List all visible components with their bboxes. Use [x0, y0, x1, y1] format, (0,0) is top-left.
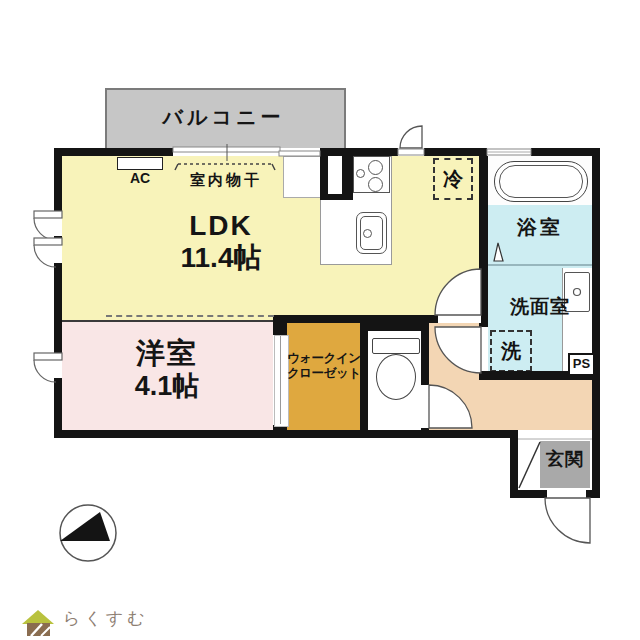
indoor-drying-label: 室内物干	[178, 172, 274, 189]
wall-mid-horizontal	[273, 315, 438, 323]
wall-toilet-left	[360, 323, 368, 430]
wall-bottom	[54, 430, 518, 438]
ps-label: PS	[573, 357, 590, 371]
opening-window-1	[54, 214, 62, 236]
wall-wic-door-top	[273, 323, 287, 335]
ac-unit-box	[117, 157, 163, 170]
kitchen-door-swing-icon	[400, 126, 422, 148]
balcony-label: バルコニー	[105, 106, 342, 128]
kitchen-entry-panel	[283, 156, 322, 198]
washroom-label: 洗面室	[488, 297, 592, 318]
western-room-name-label: 洋室	[92, 338, 242, 370]
ac-label: AC	[117, 171, 163, 186]
entrance-label: 玄関	[540, 450, 590, 470]
washer-label: 洗	[501, 338, 521, 365]
kitchen-stub-slit	[328, 156, 342, 194]
wall-entrance-bottom-right	[586, 490, 600, 498]
opening-ldk-door	[438, 315, 481, 323]
bathtub-inner	[499, 165, 583, 198]
pipe-space-box: PS	[568, 353, 595, 376]
opening-toilet-door	[421, 385, 429, 428]
floorplan-canvas: バルコニー 冷 洗	[0, 0, 640, 640]
opening-bath-window	[487, 148, 531, 156]
wall-left	[54, 148, 62, 438]
opening-wic-sliding-door	[274, 335, 289, 427]
washer-space-box: 洗	[490, 330, 532, 372]
wic-label-line2: クローゼット	[287, 367, 360, 381]
stove-burner-small-icon	[356, 169, 365, 178]
bathroom-label: 浴室	[488, 216, 592, 238]
hallway-horizontal	[479, 380, 592, 430]
opening-window-2	[54, 241, 62, 263]
opening-balcony-door	[173, 148, 320, 156]
wall-entrance-bottom-left	[510, 490, 547, 498]
partition-sliding-track	[106, 315, 274, 317]
wall-toilet-top	[360, 323, 429, 331]
partition-ldk-western	[62, 320, 273, 322]
ldk-name-label: LDK	[131, 211, 311, 242]
house-logo-icon	[22, 610, 54, 636]
opening-washroom-door	[479, 327, 488, 371]
opening-kitchen-door	[398, 148, 424, 156]
wic-label-line1: ウォークイン	[287, 352, 360, 366]
fridge-label: 冷	[443, 166, 463, 193]
logo-text: らくすむ	[63, 610, 193, 629]
ldk-size-label: 11.4帖	[131, 243, 311, 274]
faucet-icon	[363, 229, 372, 238]
opening-window-3	[54, 356, 62, 378]
stove-burner-icon	[368, 177, 383, 192]
entrance-door-swing-icon	[545, 498, 590, 543]
western-room-size-label: 4.1帖	[92, 372, 242, 402]
north-arrow-compass-icon	[60, 505, 116, 561]
fridge-space-box: 冷	[433, 158, 473, 200]
wall-entrance-left	[510, 438, 518, 498]
hallway-vertical	[429, 323, 479, 430]
toilet-bowl-icon	[376, 354, 416, 400]
wall-right	[592, 148, 600, 498]
toilet-tank	[372, 338, 420, 354]
stove-burner-icon	[368, 160, 383, 175]
